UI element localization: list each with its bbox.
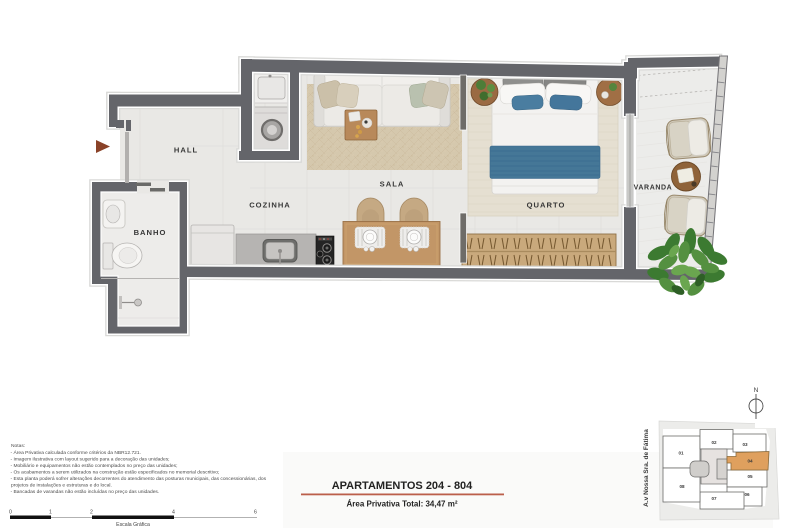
svg-text:2: 2 xyxy=(90,510,93,516)
svg-text:6: 6 xyxy=(254,510,257,516)
svg-text:03: 03 xyxy=(742,442,748,447)
svg-text:projetos de instalações e estr: projetos de instalações e estruturas e d… xyxy=(11,483,112,489)
svg-text:A.v Nossa Sra. de Fátima: A.v Nossa Sra. de Fátima xyxy=(643,429,650,507)
svg-text:COZINHA: COZINHA xyxy=(249,201,291,210)
svg-text:05: 05 xyxy=(747,474,753,479)
svg-text:N: N xyxy=(754,387,759,394)
svg-text:0: 0 xyxy=(9,510,12,516)
svg-text:08: 08 xyxy=(679,484,685,489)
svg-text:01: 01 xyxy=(678,451,684,456)
svg-text:- Esta planta poderá sofrer a: - Esta planta poderá sofrer alterações d… xyxy=(11,476,267,482)
svg-text:BANHO: BANHO xyxy=(134,228,167,237)
svg-text:1: 1 xyxy=(49,510,52,516)
svg-text:- Imagem ilustrativa com layo: - Imagem ilustrativa com layout sugerido… xyxy=(11,457,170,463)
svg-text:- Área Privativa calculada co: - Área Privativa calculada conforme crit… xyxy=(11,449,141,456)
svg-text:APARTAMENTOS 204 - 804: APARTAMENTOS 204 - 804 xyxy=(332,480,473,492)
svg-text:SALA: SALA xyxy=(380,180,405,189)
svg-text:- Mobiliário e equipamentos n: - Mobiliário e equipamentos não estão co… xyxy=(11,463,178,469)
svg-text:02: 02 xyxy=(711,440,717,445)
svg-text:4: 4 xyxy=(172,510,175,516)
svg-text:Área Privativa Total: 34,47 m²: Área Privativa Total: 34,47 m² xyxy=(346,500,457,509)
svg-text:06: 06 xyxy=(744,492,750,497)
svg-text:04: 04 xyxy=(747,459,753,464)
svg-text:07: 07 xyxy=(711,496,717,501)
svg-text:QUARTO: QUARTO xyxy=(527,201,566,210)
svg-text:Notas:: Notas: xyxy=(11,443,25,449)
svg-text:Escala Gráfica: Escala Gráfica xyxy=(116,522,150,528)
svg-text:HALL: HALL xyxy=(174,146,198,155)
svg-text:VARANDA: VARANDA xyxy=(634,185,673,192)
svg-text:- Os acabamentos a serem util: - Os acabamentos a serem utilizados na c… xyxy=(11,470,220,476)
svg-text:- Bancadas de varandas não es: - Bancadas de varandas não estão incluíd… xyxy=(11,489,160,495)
